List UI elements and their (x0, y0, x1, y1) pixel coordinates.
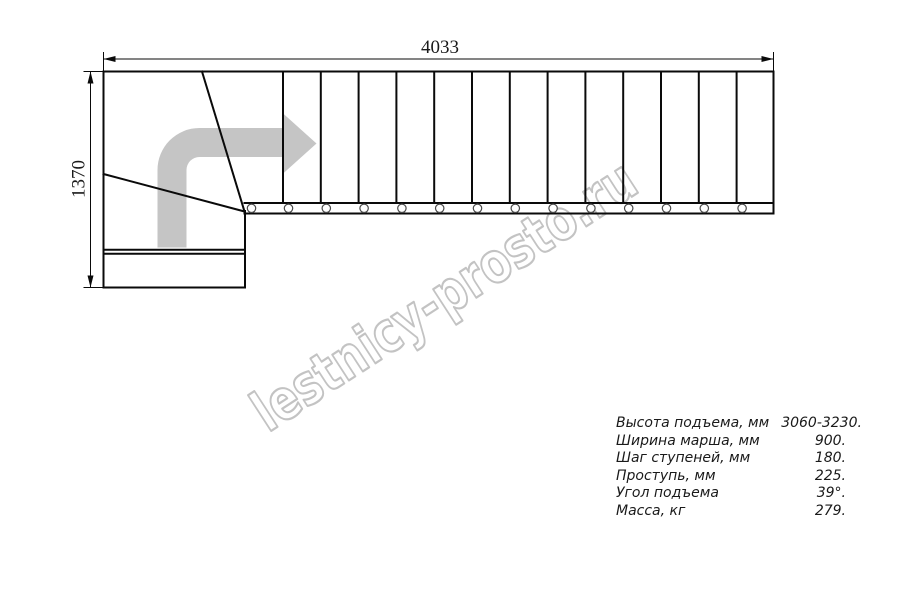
baluster-circle (398, 204, 406, 212)
height-dim-arrow-bottom-icon (88, 276, 94, 288)
spec-label: Угол подъема (616, 485, 719, 503)
specs-table: Высота подъема, мм 3060-3230. Ширина мар… (616, 415, 846, 520)
baluster-circle (360, 204, 368, 212)
stair-drawing-page: lestnicy-prosto.ru (0, 0, 900, 600)
spec-row: Проступь, мм 225. (616, 468, 846, 486)
spec-label: Высота подъема, мм (616, 415, 769, 433)
spec-value: 180. (803, 450, 846, 468)
spec-row: Ширина марша, мм 900. (616, 433, 846, 451)
baluster-circle (247, 204, 255, 212)
spec-label: Шаг ступеней, мм (616, 450, 750, 468)
baluster-circle (625, 204, 633, 212)
stair-outline (104, 72, 774, 288)
baluster-circle (473, 204, 481, 212)
baluster-circle (549, 204, 557, 212)
spec-row: Шаг ступеней, мм 180. (616, 450, 846, 468)
spec-value: 225. (803, 468, 846, 486)
spec-label: Масса, кг (616, 503, 685, 521)
spec-value: 39°. (805, 485, 846, 503)
baluster-circle (587, 204, 595, 212)
spec-row: Угол подъема 39°. (616, 485, 846, 503)
baluster-circle (511, 204, 519, 212)
baluster-circle (662, 204, 670, 212)
watermark-text: lestnicy-prosto.ru (240, 148, 649, 445)
spec-value: 900. (803, 433, 846, 451)
spec-row: Высота подъема, мм 3060-3230. (616, 415, 846, 433)
height-dim-arrow-top-icon (88, 72, 94, 84)
baluster-circle (738, 204, 746, 212)
spec-value: 279. (803, 503, 846, 521)
spec-label: Проступь, мм (616, 468, 716, 486)
spec-value: 3060-3230. (769, 415, 862, 433)
height-dim-label: 1370 (69, 160, 90, 198)
width-dim-arrow-right-icon (762, 56, 774, 62)
walk-direction-arrow-icon (158, 113, 317, 248)
width-dim-label: 4033 (421, 37, 459, 58)
spec-label: Ширина марша, мм (616, 433, 760, 451)
baluster-circle (284, 204, 292, 212)
baluster-circle (436, 204, 444, 212)
baluster-circle (700, 204, 708, 212)
spec-row: Масса, кг 279. (616, 503, 846, 521)
baluster-circle (322, 204, 330, 212)
width-dim-arrow-left-icon (104, 56, 116, 62)
